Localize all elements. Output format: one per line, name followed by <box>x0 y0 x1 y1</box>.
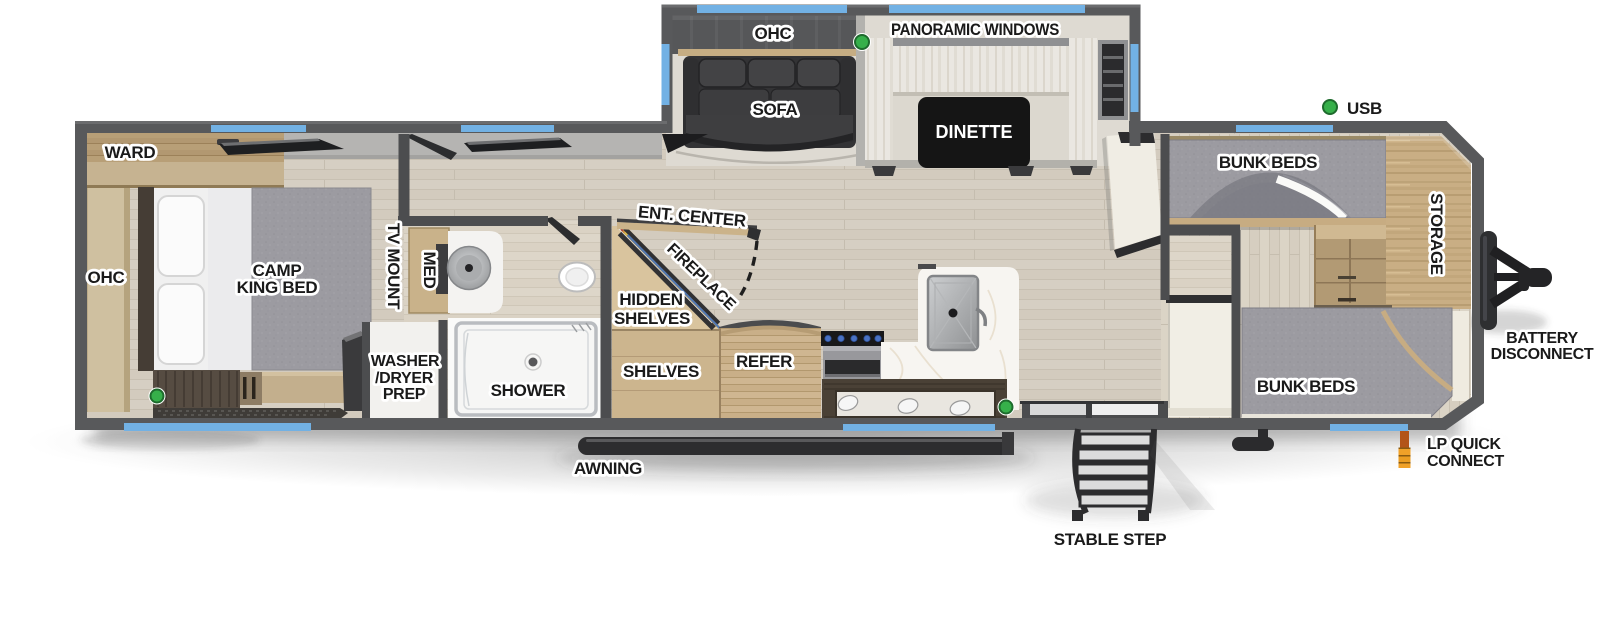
svg-text:BUNK BEDS: BUNK BEDS <box>1257 377 1355 396</box>
svg-text:OHC: OHC <box>88 268 125 287</box>
svg-text:STABLE STEP: STABLE STEP <box>1054 530 1167 549</box>
svg-text:AWNING: AWNING <box>574 459 642 478</box>
svg-text:SHELVES: SHELVES <box>623 362 699 381</box>
svg-text:SOFA: SOFA <box>752 100 797 119</box>
svg-text:BATTERY: BATTERY <box>1506 330 1578 347</box>
svg-text:WARD: WARD <box>105 143 156 162</box>
svg-text:DINETTE: DINETTE <box>935 122 1012 142</box>
svg-text:WASHER: WASHER <box>371 353 440 370</box>
svg-text:MED: MED <box>420 252 439 289</box>
svg-text:KING BED: KING BED <box>237 278 318 297</box>
svg-text:DISCONNECT: DISCONNECT <box>1491 346 1594 363</box>
svg-text:PANORAMIC WINDOWS: PANORAMIC WINDOWS <box>891 20 1059 39</box>
svg-text:SHELVES: SHELVES <box>614 309 690 328</box>
svg-text:STORAGE: STORAGE <box>1427 193 1446 275</box>
svg-text:PREP: PREP <box>383 386 426 403</box>
svg-text:TV MOUNT: TV MOUNT <box>384 223 403 310</box>
svg-text:SHOWER: SHOWER <box>491 381 566 400</box>
svg-text:LP QUICK: LP QUICK <box>1427 436 1502 453</box>
svg-text:CONNECT: CONNECT <box>1427 453 1505 470</box>
svg-text:HIDDEN: HIDDEN <box>619 290 682 309</box>
svg-text:USB: USB <box>1347 99 1382 118</box>
svg-text:/DRYER: /DRYER <box>375 370 434 387</box>
svg-text:OHC: OHC <box>755 24 792 43</box>
svg-text:REFER: REFER <box>736 352 792 371</box>
svg-text:BUNK BEDS: BUNK BEDS <box>1219 153 1317 172</box>
